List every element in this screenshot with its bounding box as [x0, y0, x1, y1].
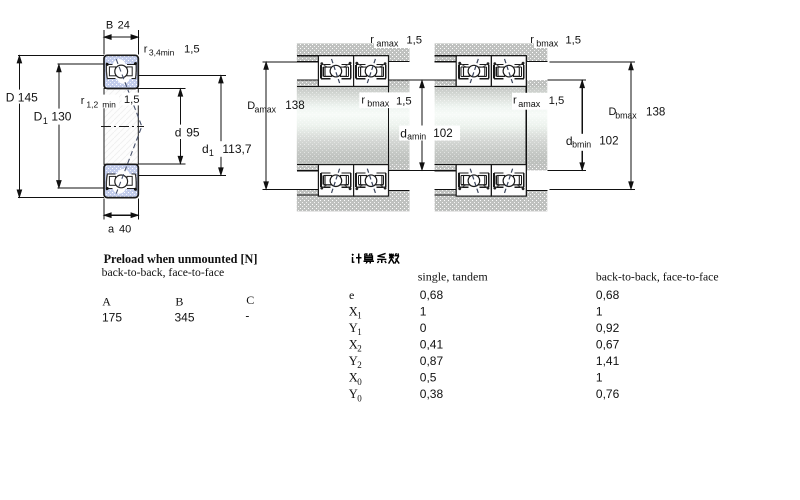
svg-text:0,41: 0,41 — [420, 338, 444, 352]
svg-text:back-to-back, face-to-face: back-to-back, face-to-face — [102, 266, 225, 279]
svg-text:min: min — [102, 99, 116, 109]
svg-text:bmax: bmax — [615, 111, 637, 121]
svg-text:d: d — [400, 127, 407, 141]
svg-text:C: C — [246, 293, 254, 307]
svg-text:24: 24 — [118, 20, 130, 32]
svg-text:r: r — [513, 94, 517, 106]
svg-text:Preload when unmounted [N]: Preload when unmounted [N] — [104, 252, 258, 266]
svg-text:1,5: 1,5 — [396, 95, 412, 107]
svg-text:1: 1 — [209, 148, 214, 158]
svg-text:amax: amax — [376, 39, 399, 49]
svg-text:d: d — [202, 142, 209, 156]
svg-text:1,41: 1,41 — [596, 354, 620, 368]
svg-text:1: 1 — [357, 327, 362, 337]
svg-text:3,4min: 3,4min — [149, 47, 175, 57]
svg-text:r: r — [361, 94, 365, 106]
svg-text:175: 175 — [102, 311, 122, 325]
svg-text:D: D — [34, 110, 43, 124]
svg-text:bmax: bmax — [536, 39, 559, 49]
svg-text:138: 138 — [285, 99, 304, 112]
svg-text:0: 0 — [357, 377, 362, 387]
svg-text:1,5: 1,5 — [565, 34, 581, 46]
svg-text:r: r — [370, 34, 374, 46]
svg-text:145: 145 — [18, 91, 38, 105]
svg-text:r: r — [81, 95, 85, 107]
svg-text:amin: amin — [407, 132, 426, 142]
svg-text:bmax: bmax — [367, 99, 390, 109]
svg-text:amax: amax — [518, 99, 541, 109]
svg-text:138: 138 — [646, 105, 665, 118]
svg-text:r: r — [144, 43, 148, 55]
svg-text:0,68: 0,68 — [420, 288, 444, 302]
svg-text:1,5: 1,5 — [406, 34, 422, 46]
svg-text:amax: amax — [255, 104, 277, 114]
svg-text:0: 0 — [357, 393, 362, 403]
svg-text:102: 102 — [433, 127, 452, 140]
svg-text:A: A — [102, 294, 111, 308]
svg-text:2: 2 — [357, 360, 362, 370]
svg-text:1,5: 1,5 — [124, 94, 140, 106]
svg-text:95: 95 — [186, 125, 200, 139]
svg-text:1: 1 — [357, 311, 362, 321]
svg-text:1: 1 — [596, 371, 603, 385]
svg-text:0,38: 0,38 — [420, 387, 444, 401]
svg-text:1: 1 — [420, 304, 427, 318]
svg-text:113,7: 113,7 — [222, 142, 251, 156]
svg-text:bmin: bmin — [572, 140, 591, 150]
svg-text:D: D — [6, 91, 15, 105]
svg-text:0,87: 0,87 — [420, 354, 444, 368]
svg-text:e: e — [349, 288, 354, 302]
svg-text:back-to-back, face-to-face: back-to-back, face-to-face — [596, 270, 719, 283]
svg-text:1: 1 — [43, 116, 48, 126]
svg-text:1,2: 1,2 — [86, 99, 98, 109]
svg-text:B: B — [106, 20, 113, 32]
svg-text:1,5: 1,5 — [549, 95, 565, 107]
svg-text:102: 102 — [599, 135, 618, 148]
svg-text:0: 0 — [420, 321, 427, 335]
svg-text:0,92: 0,92 — [596, 321, 620, 335]
svg-text:1: 1 — [596, 304, 603, 318]
svg-text:d: d — [175, 125, 182, 139]
svg-text:130: 130 — [51, 110, 71, 124]
svg-text:0,68: 0,68 — [596, 288, 620, 302]
svg-text:a: a — [108, 224, 115, 236]
svg-text:1,5: 1,5 — [184, 44, 200, 56]
svg-text:2: 2 — [357, 344, 362, 354]
svg-text:0,5: 0,5 — [420, 371, 437, 385]
svg-text:B: B — [175, 294, 183, 308]
svg-text:0,76: 0,76 — [596, 387, 620, 401]
svg-text:345: 345 — [175, 311, 195, 325]
svg-text:single, tandem: single, tandem — [418, 269, 489, 283]
svg-text:40: 40 — [119, 224, 131, 236]
svg-text:0,67: 0,67 — [596, 338, 620, 352]
svg-text:r: r — [530, 34, 534, 46]
svg-text:-: - — [245, 309, 249, 323]
